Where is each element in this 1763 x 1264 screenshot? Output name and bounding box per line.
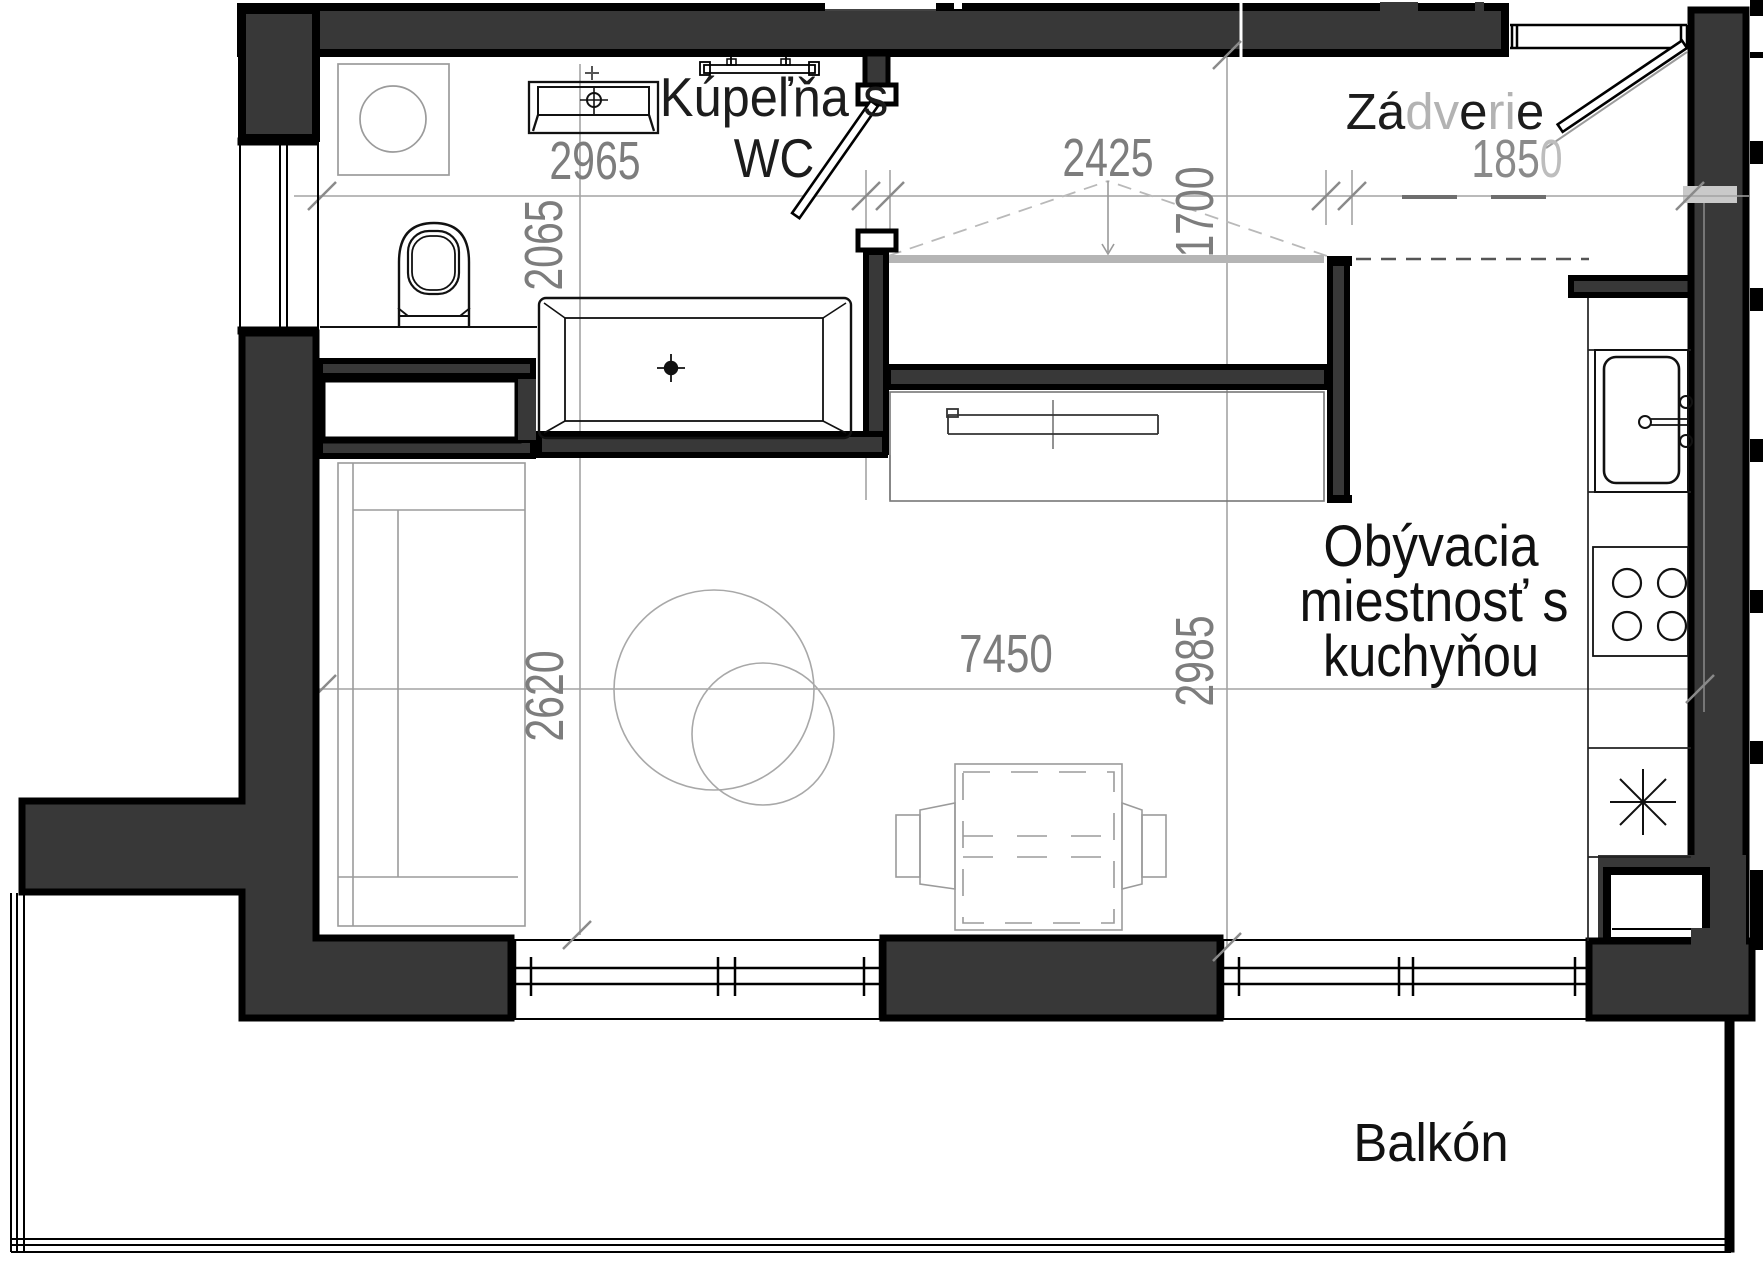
svg-text:2065: 2065 bbox=[515, 199, 575, 290]
svg-text:2985: 2985 bbox=[1166, 615, 1226, 706]
svg-text:WC: WC bbox=[734, 127, 815, 189]
svg-text:Kúpeľňa s: Kúpeľňa s bbox=[660, 67, 888, 128]
svg-text:Balkón: Balkón bbox=[1353, 1114, 1508, 1174]
svg-text:1700: 1700 bbox=[1166, 166, 1226, 257]
svg-text:kuchyňou: kuchyňou bbox=[1323, 624, 1539, 689]
svg-text:1850: 1850 bbox=[1471, 130, 1562, 190]
svg-text:2620: 2620 bbox=[516, 650, 576, 741]
svg-text:2965: 2965 bbox=[549, 132, 640, 192]
svg-text:7450: 7450 bbox=[959, 624, 1053, 684]
svg-text:2425: 2425 bbox=[1062, 129, 1153, 189]
